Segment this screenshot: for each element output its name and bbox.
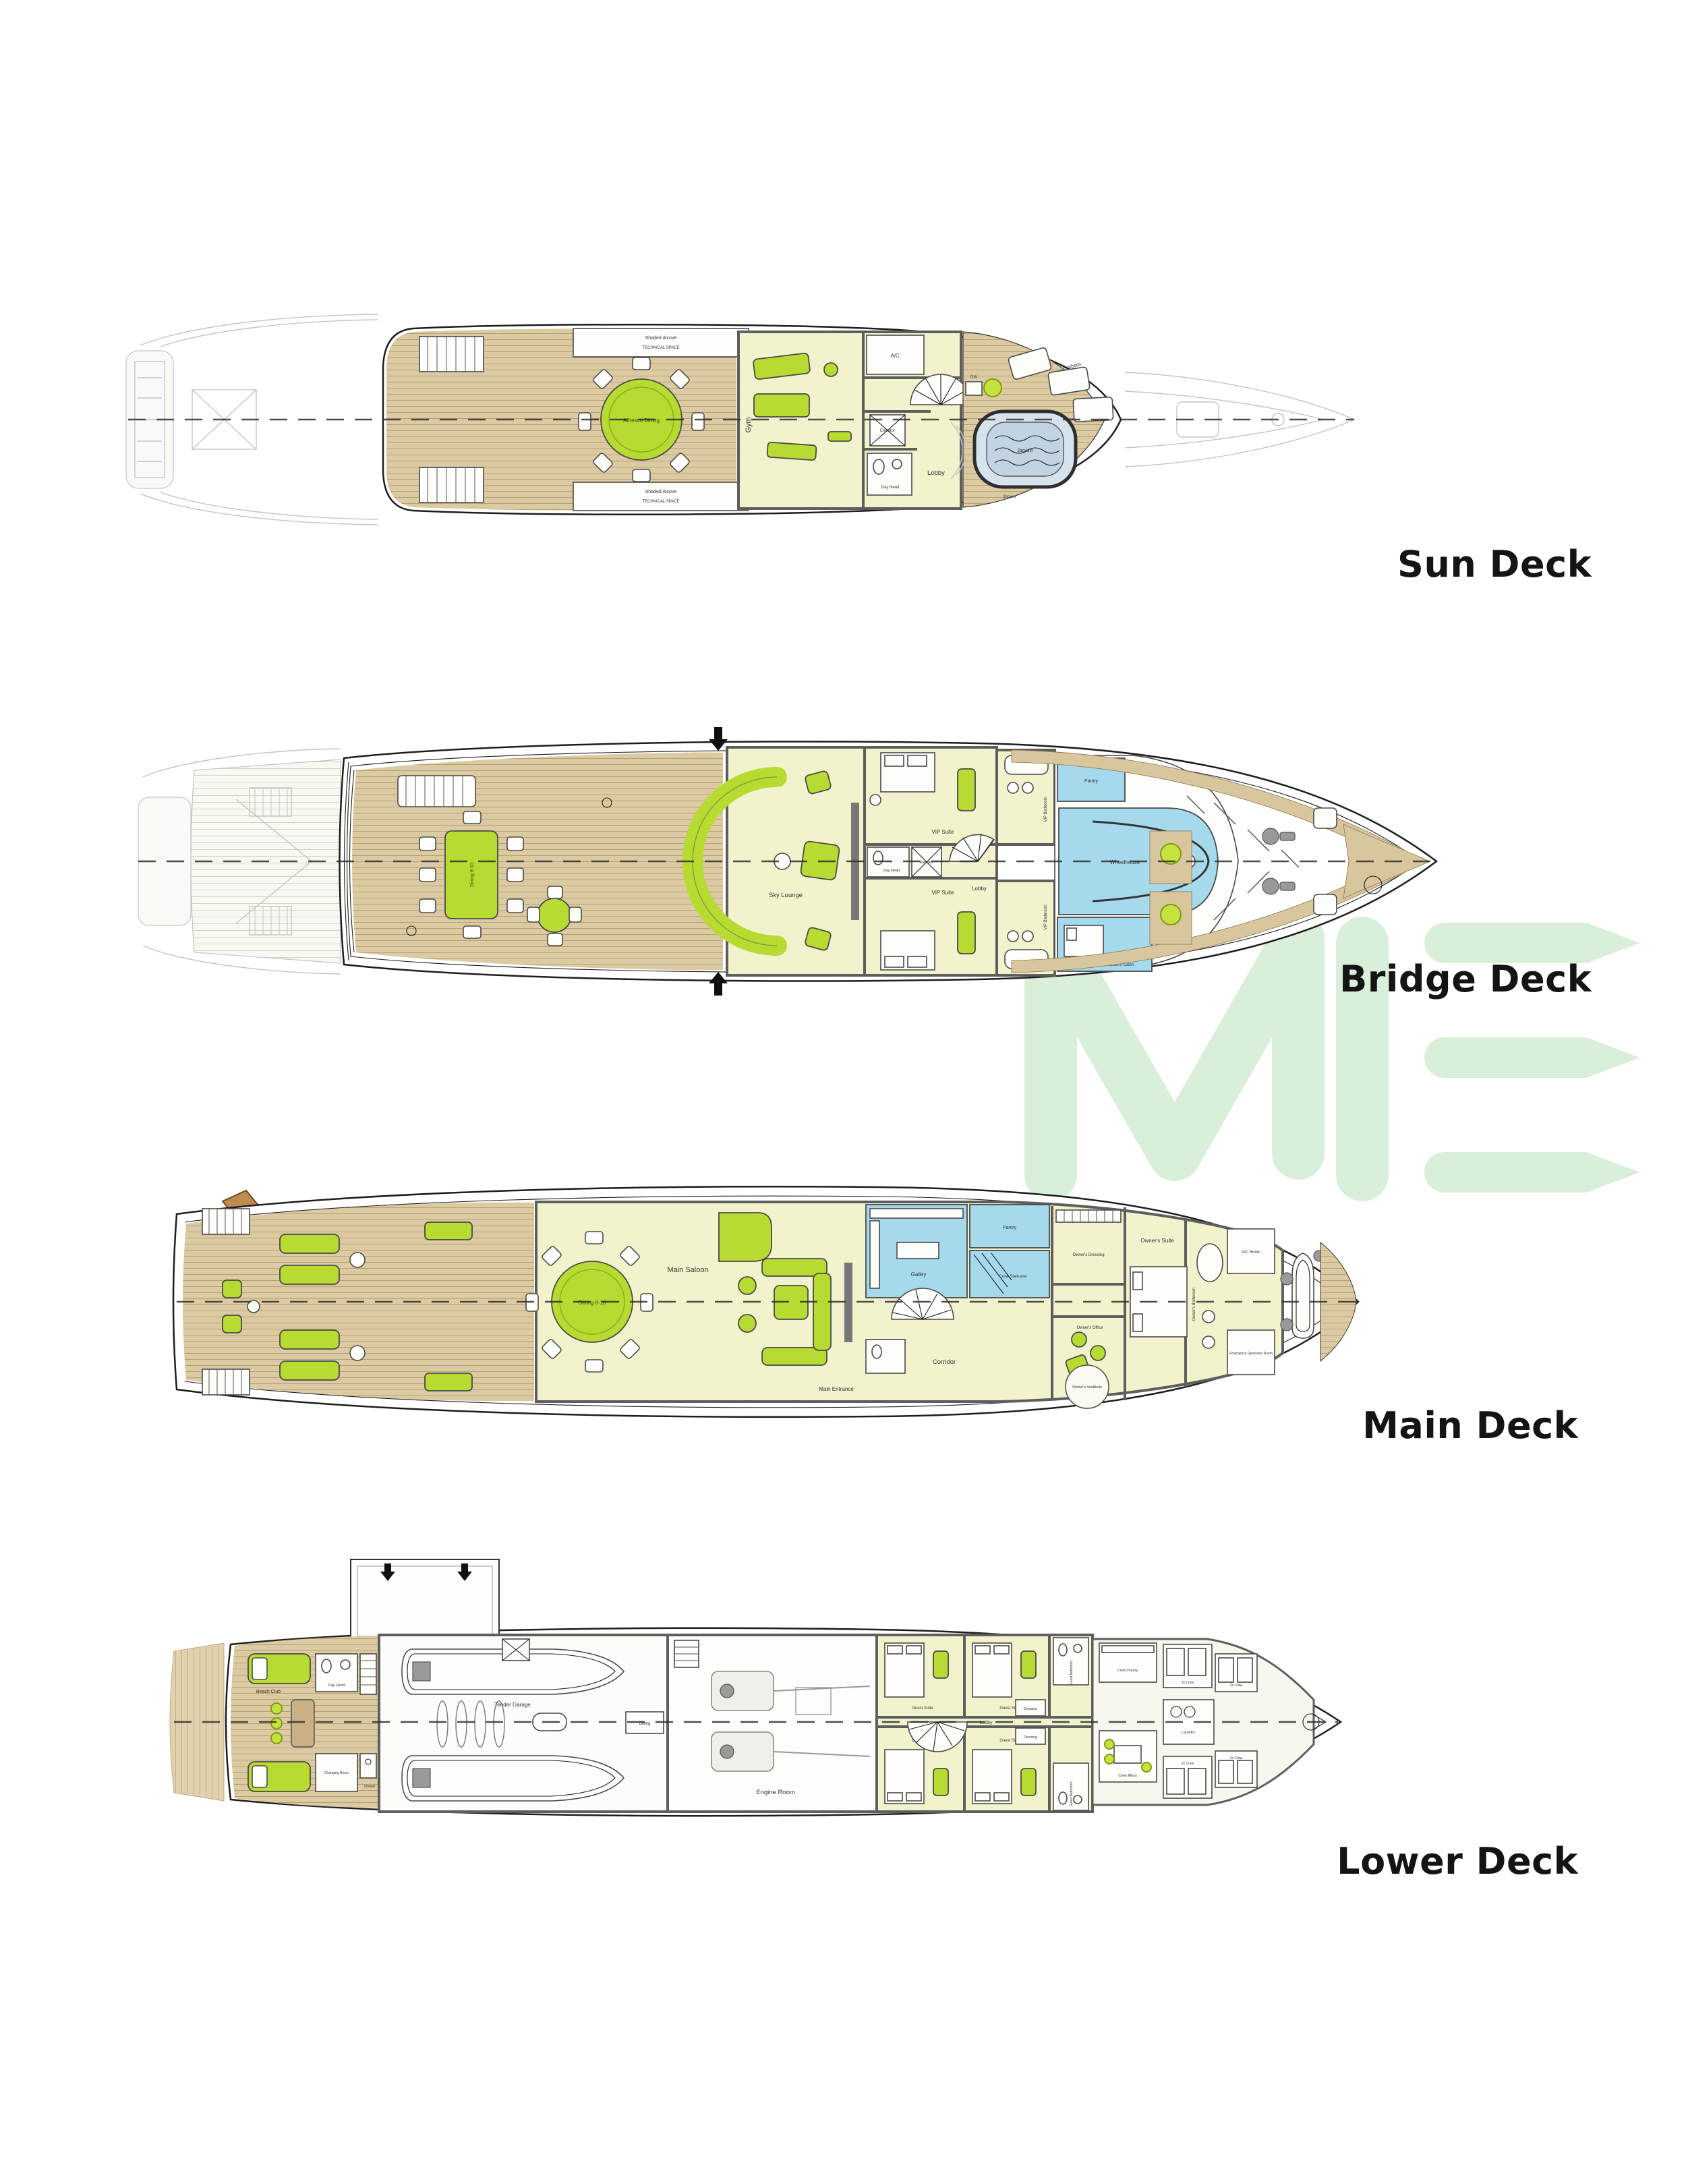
room-label: Crew Mess [1118,1774,1137,1778]
room-label: Shaded Alcove [645,336,677,341]
crew-pantry: Crew Pantry [1099,1643,1157,1682]
owners-vestibule: Owner's Vestibule [1066,1365,1109,1408]
room-label: TECHNICAL SPACE [642,346,679,350]
room-label: 2x Crew [1230,1756,1243,1760]
yacht-deck-plans-page: Shaded Alcove TECHNICAL SPACE Shaded Alc… [0,0,1686,2184]
room-label: Engine Room [756,1789,795,1796]
room-label: 2x Crew [1230,1684,1243,1688]
day-head-icon [866,1340,905,1373]
shaded-alcove-bottom: Shaded Alcove TECHNICAL SPACE [573,482,749,511]
room-label: Main Saloon [667,1266,708,1274]
room-label: VIP Suite [931,890,954,896]
room-label: Day Head [881,486,900,490]
room-label: Corridor [933,1358,956,1366]
room-label: Dressing [1024,1707,1037,1711]
guest-area: Guest Suite Guest Suite Guest Suite Gues… [877,1635,1115,1812]
sun-deck-foredeck: Jacuzzi Sunbeds Shower DW [951,332,1113,507]
room-label: Shaded Alcove [645,490,677,494]
bar-stool-icon [984,379,1001,397]
bar-counter-icon [291,1700,314,1747]
room-label: Elevator [880,429,895,433]
room-label: Guest Suite [912,1706,933,1711]
room-label: Pantry [1003,1226,1017,1230]
tender-boat-icon [402,1756,624,1801]
sun-deck-label: Sun Deck [1397,543,1592,585]
garage-door-open [351,1559,499,1643]
bridge-deck-label: Bridge Deck [1339,958,1592,1000]
room-label: VIP Bathroom [1044,797,1048,822]
deck-bench-icon [398,776,475,807]
room-label: VIP Bathroom [1044,904,1048,929]
main-deck-superstructure: Dining 8-10 Main Saloon Galley Pantry [526,1202,1283,1408]
room-label: Pantry [1084,779,1099,784]
lower-deck-label: Lower Deck [1337,1840,1578,1883]
room-label: 2x Crew [1182,1681,1194,1685]
tender-boat-icon [1292,1253,1314,1338]
room-label: Galley [911,1271,927,1277]
room-label: Owner's Bathroom [1192,1288,1196,1321]
room-label: VIP Suite [931,829,954,835]
room-label: Owner's Dressing [1072,1253,1104,1257]
piano-icon [719,1213,772,1261]
room-label: Guest Bathroom [1070,1661,1074,1685]
room-label: Crew Pantry [1117,1669,1138,1673]
room-label: Changing Room [324,1771,349,1775]
room-label: Owner's Suite [1140,1238,1174,1244]
room-label: Owner's Office [1076,1326,1103,1330]
room-label: Shower [364,1785,376,1789]
room-label: Tender Garage [494,1702,531,1708]
room-label: Emergency Generator Room [1229,1352,1273,1356]
room-label: Sky Lounge [769,892,803,899]
room-label: Laundry [1182,1731,1195,1735]
main-deck-label: Main Deck [1362,1404,1578,1447]
room-label: Owner's Vestibule [1072,1385,1102,1389]
room-label: Crew Staircase [999,1275,1027,1279]
changing-room: Changing Room [316,1754,357,1791]
room-label: Lobby [972,886,987,892]
room-label: A/C Room [1242,1251,1260,1255]
engine-room: Engine Room [668,1635,877,1812]
room-label: Alfresco Dining [623,418,660,424]
galley-block: Galley Pantry Crew Staircase [866,1205,1049,1298]
lower-deck-plan: Beach Club Day Head Changing Room Shower [0,1551,1686,1875]
room-label: Lobby [927,469,945,477]
room-label: Jacuzzi [1017,449,1033,453]
room-label: 2x Crew [1182,1762,1194,1766]
room-label: Shower [1003,495,1016,499]
tender-garage: Tender Garage Diving [379,1635,668,1812]
room-label: Beach Club [256,1690,281,1694]
shaded-alcove-top: Shaded Alcove TECHNICAL SPACE [573,328,749,357]
room-label: Dining 8-10 [579,1300,606,1306]
day-head-icon: Day Head [867,453,912,495]
crew-mess: Crew Mess [1099,1731,1157,1782]
room-label: Day Head [883,869,900,873]
room-label: A/C [890,353,900,359]
room-label: TECHNICAL SPACE [642,500,679,504]
room-label: Wheelhouse [1110,859,1140,865]
room-label: Dining 8-10 [470,863,475,887]
room-label: Dressing [1024,1735,1037,1740]
room-label: DW [970,376,977,380]
day-head-icon: Day Head [316,1654,357,1692]
dumbwaiter-icon [966,382,982,395]
room-label: Guest Bathroom [1070,1782,1074,1806]
room-label: Day Head [328,1684,345,1688]
room-label: Main Entrance [819,1386,854,1392]
